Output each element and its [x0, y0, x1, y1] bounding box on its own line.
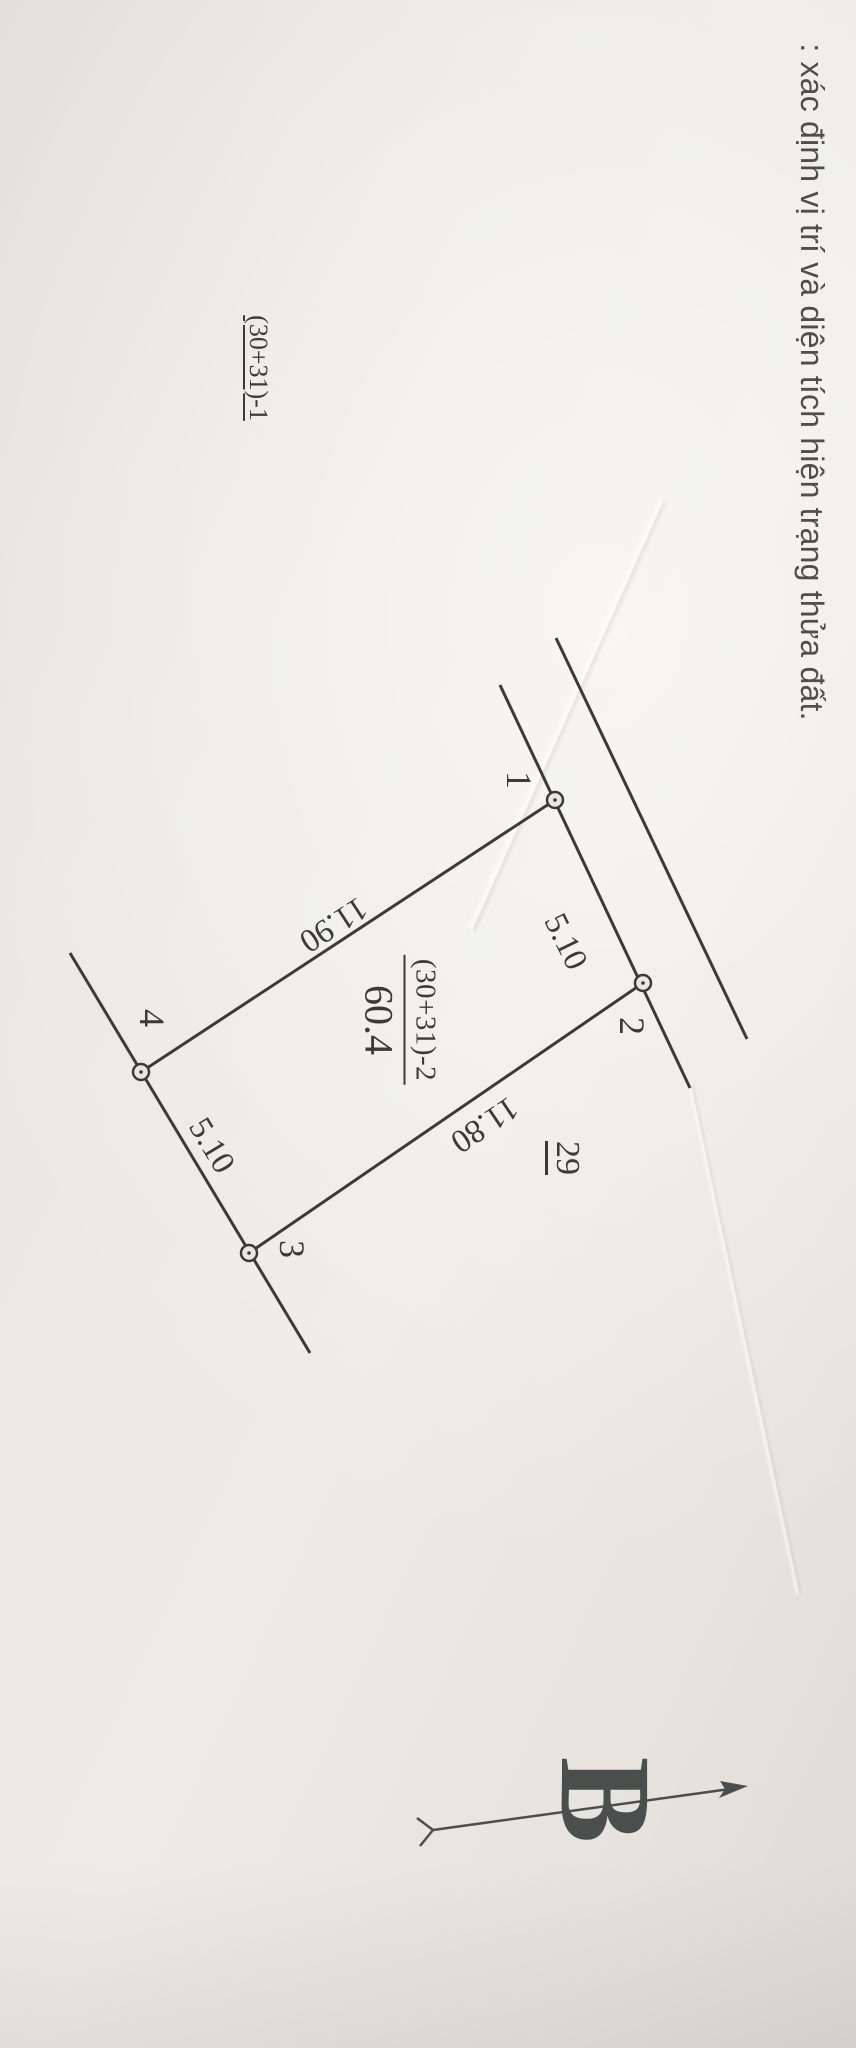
- page-title: : xác định vị trí và diện tích hiện trạn…: [796, 43, 828, 720]
- vertex-dot-1: [553, 798, 557, 802]
- vertex-label-1: 1: [501, 771, 537, 789]
- road-line-far: [556, 638, 747, 1039]
- scanned-cadastral-sketch: : xác định vị trí và diện tích hiện trạn…: [0, 0, 856, 2048]
- north-arrow-tail-prong: [420, 1830, 433, 1846]
- vertex-label-2: 2: [614, 1017, 650, 1035]
- parcel-id-area-label: (30+31)-2 60.4: [359, 955, 440, 1085]
- vertex-dot-3: [247, 1251, 251, 1255]
- vertex-dot-4: [139, 1070, 143, 1074]
- edge-4-3-extended: [70, 953, 310, 1353]
- neighbor-parcel-label-30-31-1: (30+31)-1: [245, 315, 271, 421]
- neighbor-parcel-label-29: 29: [550, 1141, 584, 1175]
- vertex-label-4: 4: [134, 1009, 170, 1027]
- edge-2-3: [249, 983, 643, 1253]
- vertex-label-3: 3: [274, 1240, 310, 1258]
- road-line-near: [500, 685, 690, 1088]
- north-symbol-label: B: [540, 1757, 670, 1844]
- north-arrow-tail-prong: [417, 1818, 433, 1830]
- parcel-area: 60.4: [359, 955, 404, 1085]
- vertex-dot-2: [641, 981, 645, 985]
- parcel-id: (30+31)-2: [404, 955, 440, 1085]
